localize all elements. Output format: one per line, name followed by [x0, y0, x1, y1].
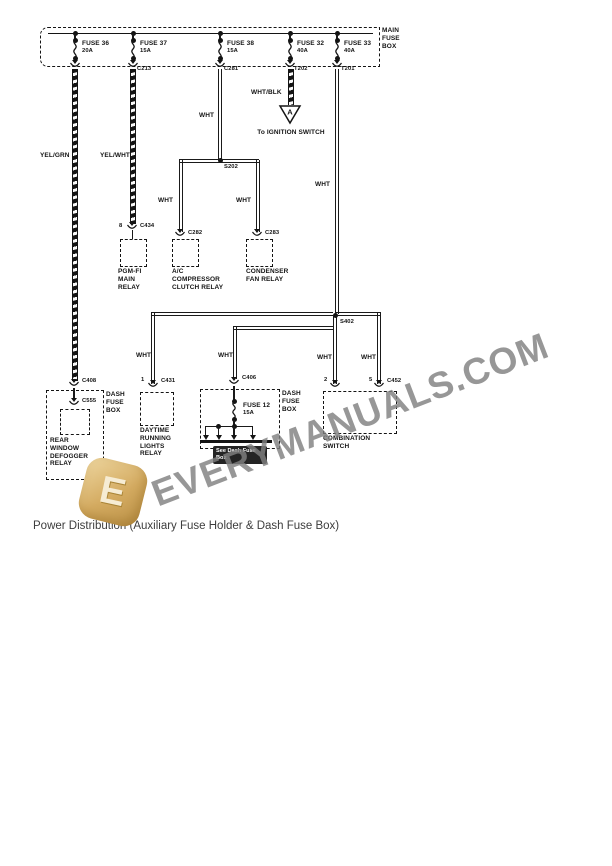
wire-wht-fuse33 [335, 69, 339, 314]
main-fuse-box-label: MAIN FUSE BOX [382, 27, 410, 50]
fuse-amps: 15A [227, 48, 238, 55]
wire-color-label: WHT [158, 197, 173, 205]
fuse-name: FUSE 37 [140, 40, 167, 48]
connector-label: T202 [294, 66, 308, 73]
scanned-wiring-diagram-page: MAIN FUSE BOX FUSE 36 20A FUSE 37 15A C2… [0, 0, 612, 866]
wire-wht-c282 [179, 160, 183, 232]
splice-label: S202 [224, 164, 238, 171]
drl-relay-box [140, 392, 174, 426]
fuse-amps: 40A [344, 48, 355, 55]
wire-segment [233, 426, 234, 435]
connector-label: C213 [137, 66, 151, 73]
connector-label: C281 [224, 66, 238, 73]
pgm-fi-relay-label: PGM-FI MAIN RELAY [118, 268, 152, 291]
pgm-fi-relay-box [120, 239, 147, 267]
condenser-fan-relay-label: CONDENSER FAN RELAY [246, 268, 296, 284]
fuse-name: FUSE 12 [243, 402, 270, 410]
rear-defogger-relay-box [60, 409, 90, 435]
wire-color-label: WHT [361, 354, 376, 362]
connector-label: C408 [82, 378, 96, 385]
dash-fuse-box-mid-label: DASH FUSE BOX [282, 390, 308, 413]
wire-color-label: YEL/WHT [100, 152, 130, 160]
pin-number: 8 [119, 223, 122, 230]
connector-symbol [69, 60, 81, 69]
wire-yel-grn [72, 69, 79, 381]
fuse-amps: 15A [243, 410, 254, 417]
drl-relay-label: DAYTIME RUNNING LIGHTS RELAY [140, 427, 180, 458]
dash-fuse-box-left-label: DASH FUSE BOX [106, 391, 132, 414]
connector-symbol [147, 380, 159, 389]
pin-number: 1 [141, 377, 144, 384]
distribution-bus [205, 426, 253, 427]
fuse-symbol [230, 402, 238, 418]
wire-segment [205, 426, 206, 435]
wire-color-label: WHT [317, 354, 332, 362]
ac-clutch-relay-box [172, 239, 199, 267]
connector-symbol [68, 398, 80, 407]
pin-number: 2 [324, 377, 327, 384]
wire-color-label: WHT [136, 352, 151, 360]
wire-segment [132, 230, 133, 239]
wire-color-label: WHT [315, 181, 330, 189]
branch-line [179, 159, 259, 163]
wire-color-label: WHT [236, 197, 251, 205]
branch-line [335, 312, 381, 316]
wire-segment [233, 386, 234, 400]
connector-label: C434 [140, 223, 154, 230]
fuse-amps: 40A [297, 48, 308, 55]
junction-dot [218, 38, 223, 43]
junction-dot [131, 38, 136, 43]
fuse-bus-line [48, 33, 373, 34]
wire-color-label: WHT/BLK [251, 89, 282, 97]
wire-wht-c431 [151, 313, 155, 384]
wire-wht-c406 [233, 327, 237, 379]
condenser-fan-relay-box [246, 239, 273, 267]
connector-symbol [68, 379, 80, 388]
arrow-letter: A [287, 108, 293, 117]
connector-label: C555 [82, 398, 96, 405]
branch-line [233, 326, 333, 330]
fuse-name: FUSE 33 [344, 40, 371, 48]
wire-wht-fuse38 [218, 69, 222, 159]
pin-number: 5 [369, 377, 372, 384]
junction-dot [73, 38, 78, 43]
junction-dot [335, 38, 340, 43]
wire-wht-comb-right [377, 313, 381, 384]
diagram-caption: Power Distribution (Auxiliary Fuse Holde… [33, 520, 339, 532]
connector-label: C431 [161, 378, 175, 385]
branch-line [151, 312, 333, 316]
junction-dot [288, 38, 293, 43]
connector-symbol [251, 229, 263, 238]
connector-label: C282 [188, 230, 202, 237]
connector-symbol [329, 380, 341, 389]
fuse-amps: 15A [140, 48, 151, 55]
ac-clutch-relay-label: A/C COMPRESSOR CLUTCH RELAY [172, 268, 227, 291]
connector-symbol [228, 377, 240, 386]
connector-label: C406 [242, 375, 256, 382]
wire-segment [218, 426, 219, 435]
connector-symbol [174, 229, 186, 238]
fuse-amps: 20A [82, 48, 93, 55]
fuse-name: FUSE 38 [227, 40, 254, 48]
wire-color-label: YEL/GRN [40, 152, 70, 160]
fuse-name: FUSE 36 [82, 40, 109, 48]
ignition-switch-label: To IGNITION SWITCH [245, 129, 337, 137]
watermark-logo-letter: E [96, 468, 130, 515]
connector-label: C283 [265, 230, 279, 237]
fuse-name: FUSE 32 [297, 40, 324, 48]
wire-wht-comb-left [333, 316, 337, 384]
wire-color-label: WHT [199, 112, 214, 120]
watermark-logo: E [75, 454, 150, 529]
wire-color-label: WHT [218, 352, 233, 360]
wire-wht-blk [288, 69, 295, 105]
wire-wht-c283 [256, 160, 260, 232]
connector-label: T201 [341, 66, 355, 73]
wire-yel-wht [130, 69, 137, 224]
splice-label: S402 [340, 319, 354, 326]
offpage-arrow-icon: A [278, 105, 302, 125]
